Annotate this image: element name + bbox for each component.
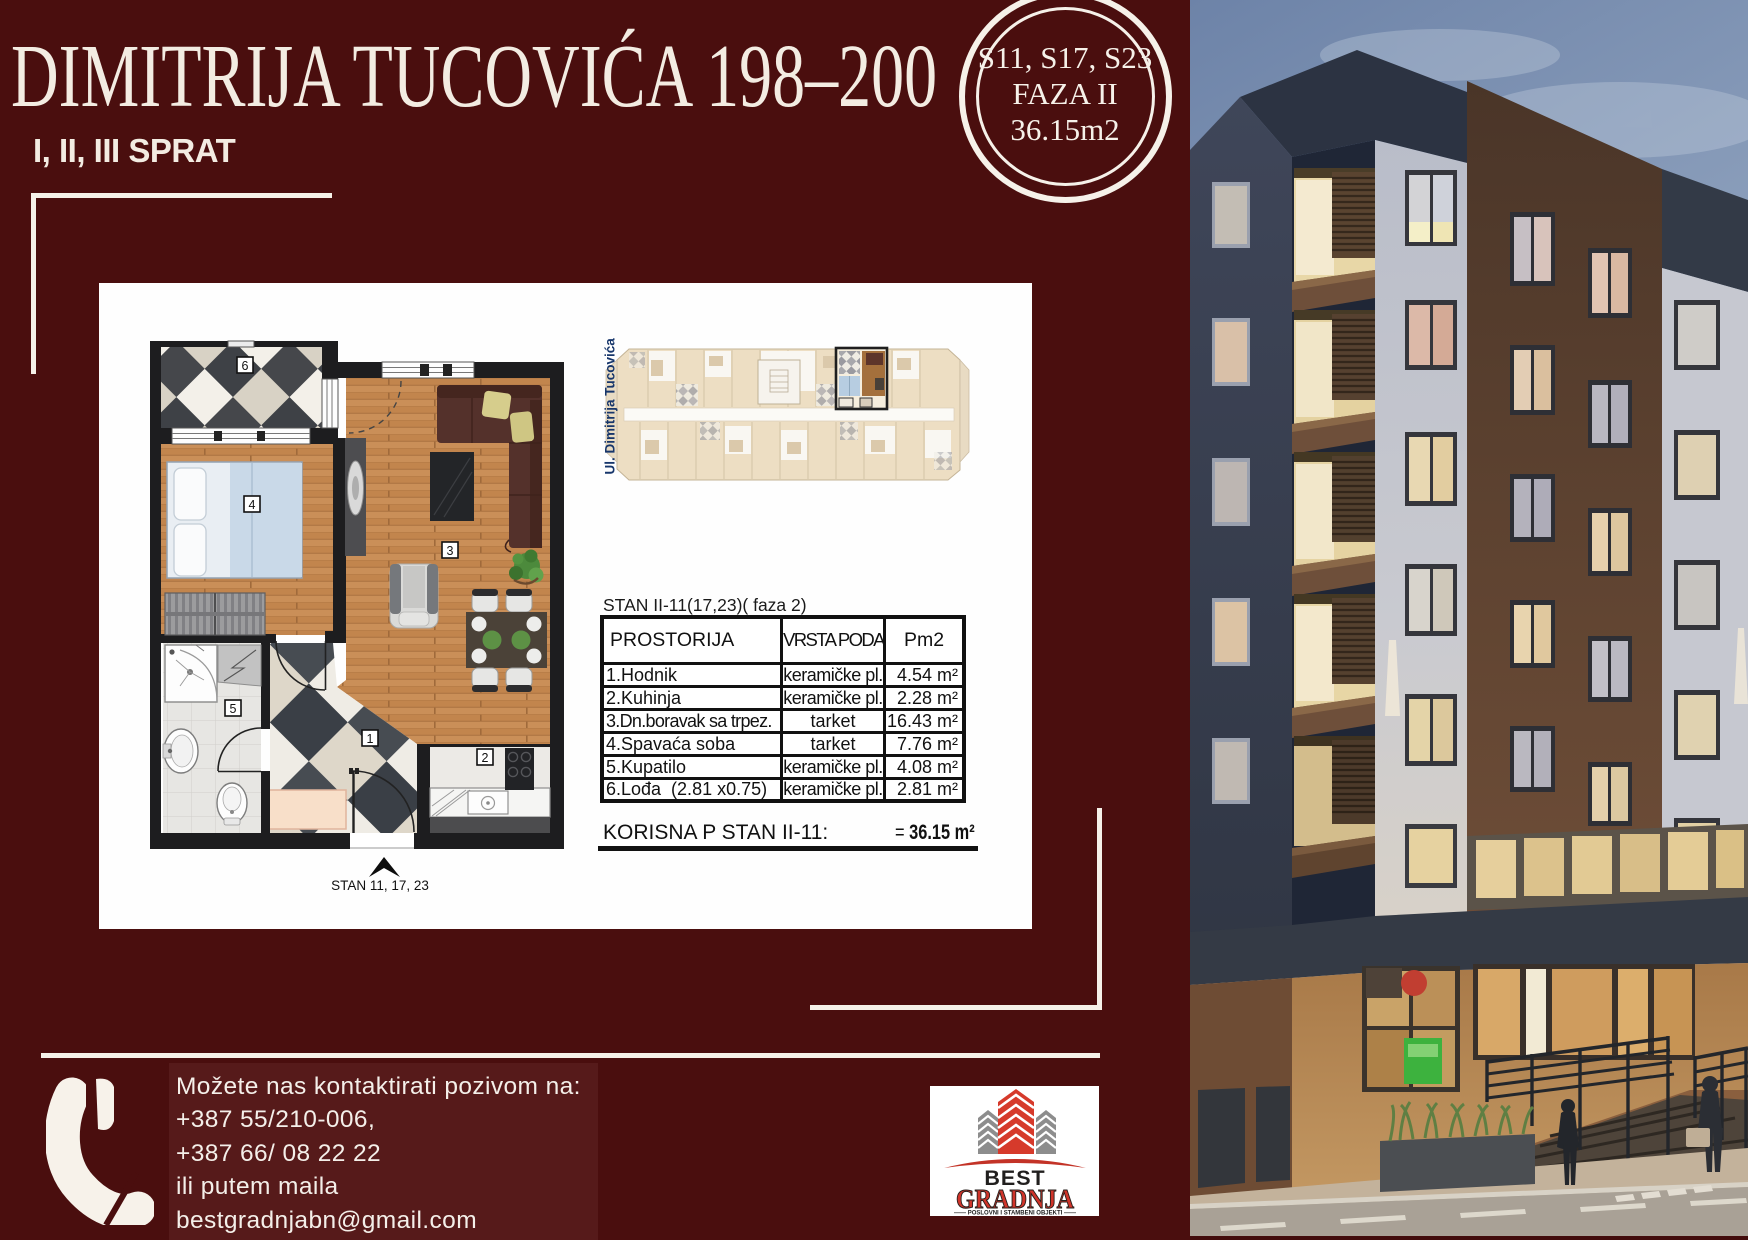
svg-text:GRADNJA: GRADNJA [956,1184,1074,1214]
svg-text:STAN 11, 17, 23: STAN 11, 17, 23 [331,878,429,893]
svg-text:5: 5 [230,702,237,716]
svg-text:4: 4 [249,498,256,512]
svg-text:6: 6 [242,359,249,373]
svg-text:1: 1 [367,732,374,746]
svg-text:2: 2 [482,751,489,765]
svg-text:—— POSLOVNI I STAMBENI OBJEKTI: —— POSLOVNI I STAMBENI OBJEKTI —— [954,1211,1076,1217]
svg-text:3: 3 [447,544,454,558]
